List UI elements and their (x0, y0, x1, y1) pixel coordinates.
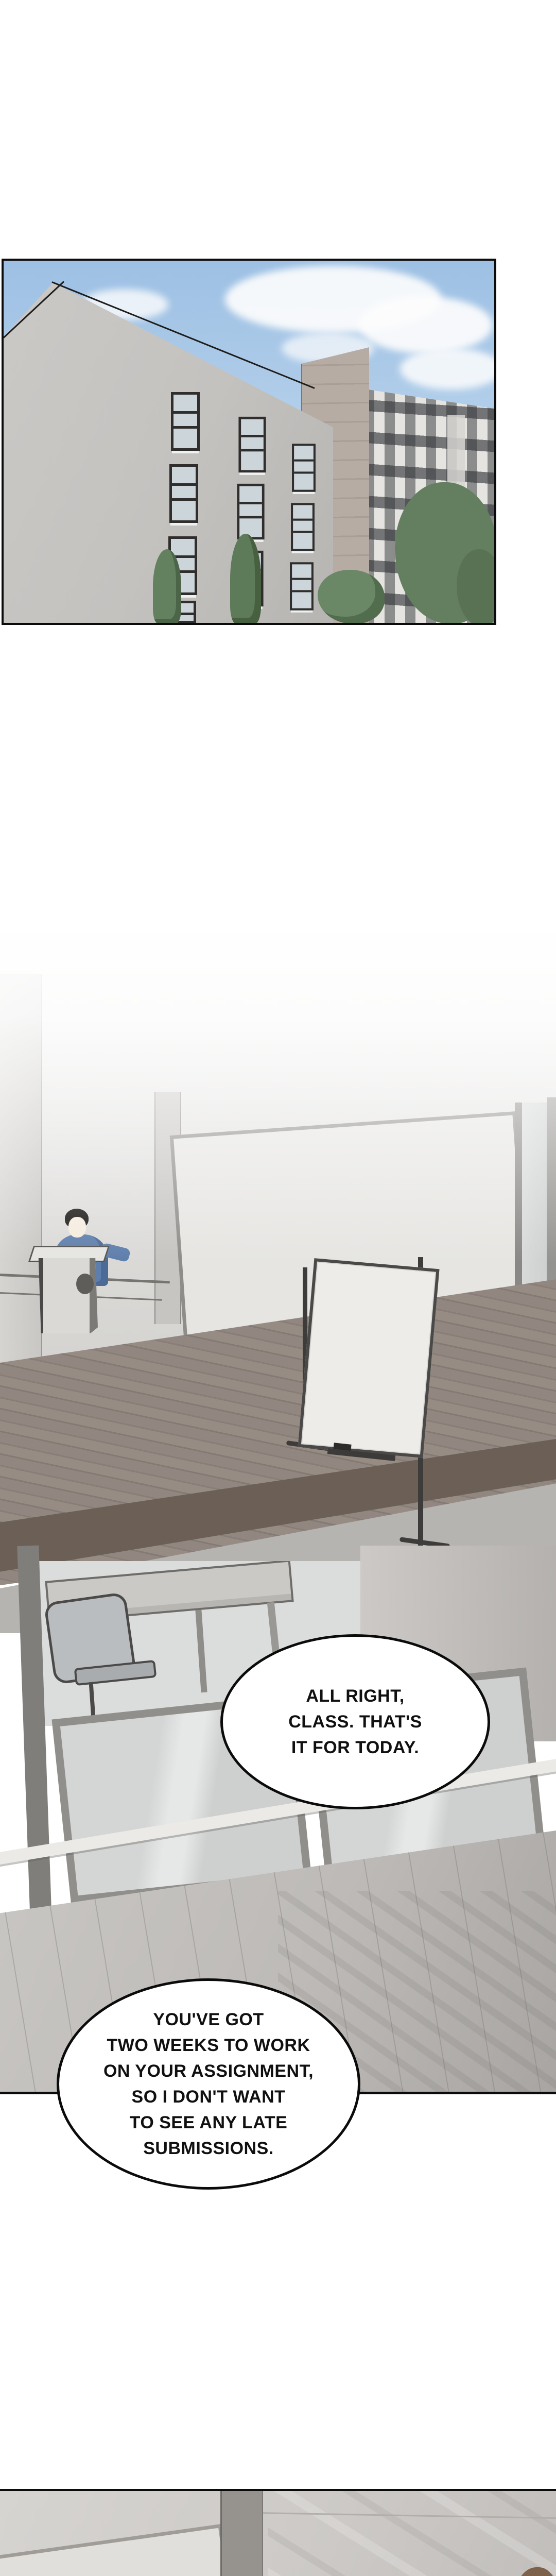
speech-bubble-professor-1: ALL RIGHT, CLASS. THAT'S IT FOR TODAY. (220, 1634, 490, 1809)
office-chair-base (89, 1682, 96, 1718)
window (169, 464, 198, 523)
speech-line: CLASS. THAT'S (288, 1709, 422, 1735)
cloud (359, 297, 493, 353)
wall-light-streaks (268, 2491, 556, 2576)
speech-line: YOU'VE GOT (153, 2007, 264, 2032)
speech-line: IT FOR TODAY. (291, 1735, 419, 1760)
speech-line: TO SEE ANY LATE (130, 2110, 288, 2136)
panel-lecture-hall (0, 2489, 556, 2576)
window (292, 444, 316, 492)
window (290, 562, 314, 610)
window (291, 503, 315, 551)
podium-logo-circle (76, 1274, 94, 1294)
panel-building-exterior (2, 259, 496, 625)
speech-line: TWO WEEKS TO WORK (107, 2032, 310, 2058)
desk-leg (195, 1610, 207, 1692)
speech-bubble-professor-2: YOU'VE GOT TWO WEEKS TO WORK ON YOUR ASS… (57, 1978, 360, 2190)
white-fade-overlay (0, 644, 556, 1262)
window (171, 392, 200, 451)
comic-page: ALL RIGHT, CLASS. THAT'S IT FOR TODAY. Y… (0, 0, 556, 2576)
tree (153, 549, 181, 624)
whiteboard-upper (0, 2524, 238, 2576)
tree (230, 534, 261, 624)
speech-line: SUBMISSIONS. (143, 2136, 273, 2161)
wall-column (220, 2491, 263, 2576)
speech-line: ALL RIGHT, (306, 1683, 404, 1709)
speech-line: SO I DON'T WANT (132, 2084, 286, 2110)
cloud (400, 348, 496, 389)
panel-classroom-wide: ALL RIGHT, CLASS. THAT'S IT FOR TODAY. (0, 644, 556, 2094)
window (238, 417, 266, 472)
podium (36, 1258, 98, 1333)
window (237, 484, 264, 539)
freestanding-whiteboard (298, 1258, 439, 1458)
speech-line: ON YOUR ASSIGNMENT, (103, 2058, 314, 2084)
